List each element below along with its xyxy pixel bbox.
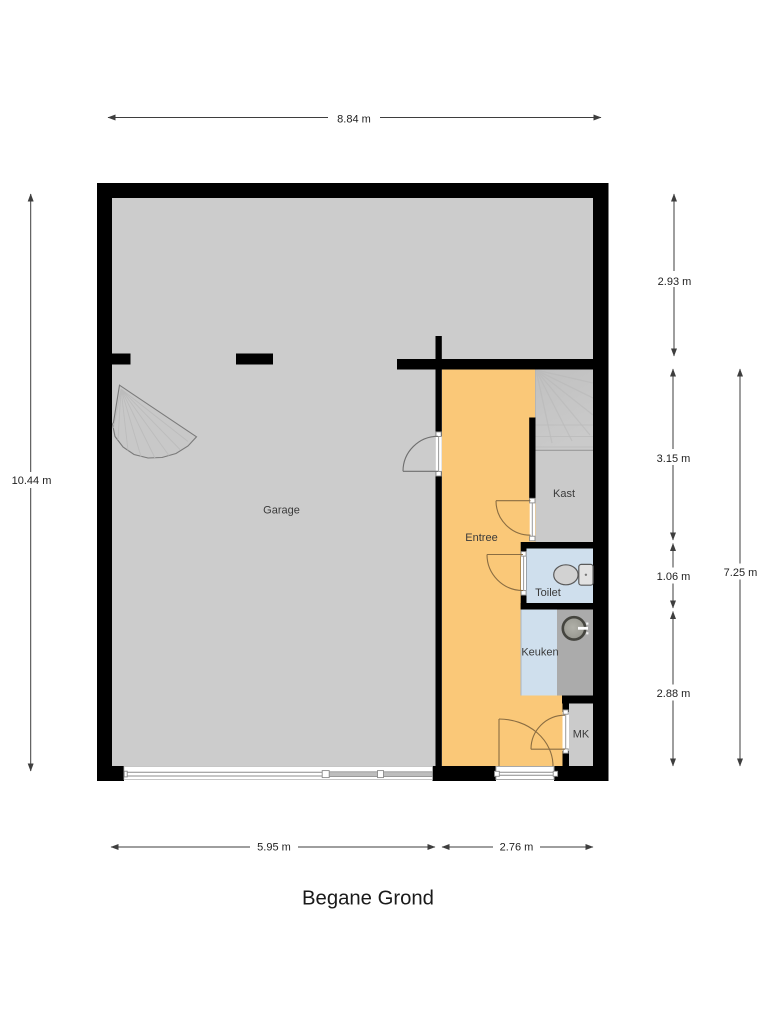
- svg-text:8.84 m: 8.84 m: [337, 113, 371, 125]
- svg-text:Entree: Entree: [465, 532, 497, 544]
- svg-text:Begane Grond: Begane Grond: [302, 888, 434, 910]
- svg-text:2.76 m: 2.76 m: [500, 842, 534, 854]
- svg-text:Toilet: Toilet: [535, 587, 561, 599]
- svg-text:MK: MK: [573, 728, 590, 740]
- svg-text:Keuken: Keuken: [521, 647, 558, 659]
- svg-text:5.95 m: 5.95 m: [257, 842, 291, 854]
- svg-text:3.15 m: 3.15 m: [657, 453, 691, 465]
- svg-text:7.25 m: 7.25 m: [724, 567, 758, 579]
- svg-text:10.44 m: 10.44 m: [12, 475, 52, 487]
- svg-text:Garage: Garage: [263, 505, 300, 517]
- svg-text:1.06 m: 1.06 m: [657, 571, 691, 583]
- svg-text:Kast: Kast: [553, 488, 575, 500]
- svg-text:2.88 m: 2.88 m: [657, 688, 691, 700]
- svg-text:2.93 m: 2.93 m: [658, 276, 692, 288]
